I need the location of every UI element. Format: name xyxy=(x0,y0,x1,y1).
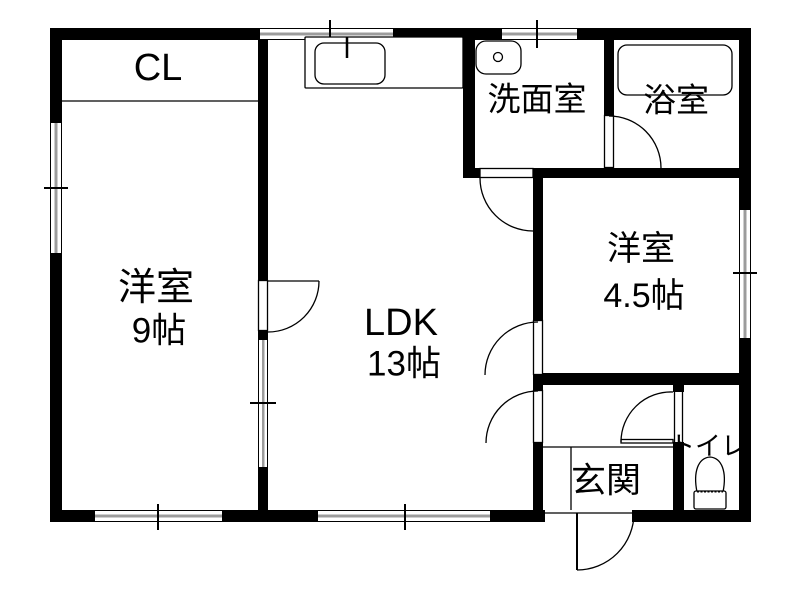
wall xyxy=(533,373,751,385)
window xyxy=(502,28,577,40)
room-size-ldk: 13帖 xyxy=(367,347,441,382)
room-label-bathroom: 浴室 xyxy=(643,84,709,117)
wall xyxy=(739,338,751,522)
wall xyxy=(577,28,751,40)
wall xyxy=(258,40,268,280)
room-label-toilet: トイレ xyxy=(669,433,747,459)
room-label-washroom: 洗面室 xyxy=(488,83,587,116)
room-label-ldk: LDK xyxy=(364,304,438,342)
toilet-icon xyxy=(694,457,726,509)
washbasin-icon xyxy=(476,41,521,74)
wall xyxy=(739,28,751,210)
door-bathroom xyxy=(605,116,662,169)
wall xyxy=(533,443,543,512)
doors xyxy=(259,116,684,571)
door-bedroom9 xyxy=(259,281,320,333)
door-bedroom45 xyxy=(485,321,543,376)
door-entrance xyxy=(577,513,634,570)
door-washroom xyxy=(480,169,533,232)
wall xyxy=(258,331,268,340)
kitchen-sink-icon xyxy=(305,37,463,88)
wall xyxy=(533,178,543,320)
room-size-bedroom45: 4.5帖 xyxy=(603,279,684,313)
wall xyxy=(222,510,318,522)
wall xyxy=(463,40,475,178)
room-label-bedroom9: 洋室 xyxy=(118,269,194,307)
wall xyxy=(258,467,268,512)
wall xyxy=(533,168,751,178)
room-label-bedroom45: 洋室 xyxy=(607,232,675,266)
wall xyxy=(50,253,62,522)
wall xyxy=(604,40,614,115)
wall xyxy=(632,510,751,522)
floor-plan: CL 洋室 9帖 LDK 13帖 洗面室 浴室 洋室 4.5帖 玄関 トイレ xyxy=(0,0,800,600)
room-label-closet: CL xyxy=(134,49,183,87)
wall xyxy=(50,28,260,40)
room-size-bedroom9: 9帖 xyxy=(132,314,186,349)
wall xyxy=(463,168,480,178)
door-hall xyxy=(486,391,543,444)
room-label-entrance: 玄関 xyxy=(571,464,641,499)
wall xyxy=(50,510,95,522)
wall xyxy=(50,28,62,123)
wall xyxy=(673,385,684,392)
